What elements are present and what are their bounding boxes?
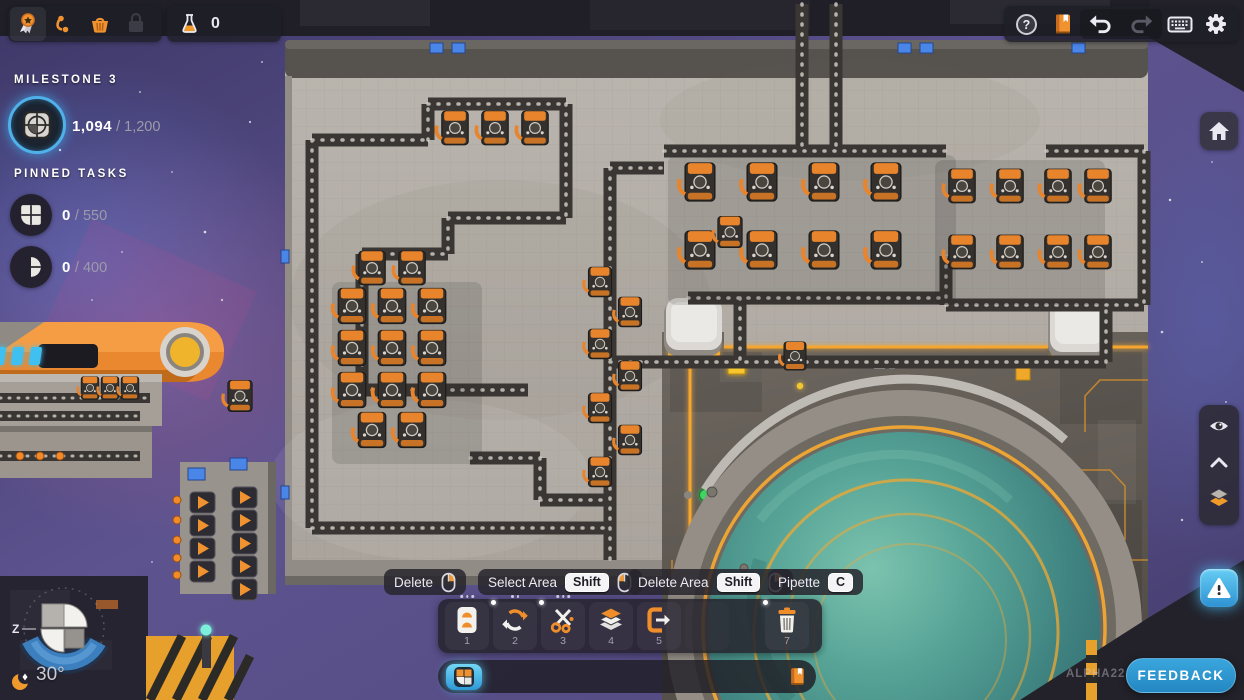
pinned-shape-button[interactable] xyxy=(446,664,482,690)
redo-button[interactable] xyxy=(1121,7,1162,41)
hotbar-slot-cutter[interactable]: 3 xyxy=(541,602,585,650)
hint-label: Pipette xyxy=(778,575,820,590)
redo-icon xyxy=(1129,12,1154,37)
game-world[interactable] xyxy=(0,0,1244,700)
hint-key: C xyxy=(828,573,853,592)
book-icon xyxy=(786,664,808,690)
eye-icon xyxy=(1206,414,1232,438)
flask-icon xyxy=(177,12,201,36)
slot-number: 7 xyxy=(784,636,790,647)
settings-button[interactable] xyxy=(1198,7,1234,41)
visibility-button[interactable] xyxy=(1201,409,1237,443)
rotate-icon xyxy=(501,604,529,636)
compass-icon[interactable] xyxy=(10,670,32,692)
milestone-header: MILESTONE 3 xyxy=(14,74,118,86)
hint-delete: Delete xyxy=(384,569,466,595)
notification-dot xyxy=(763,600,768,605)
journal-quick-button[interactable] xyxy=(786,664,808,690)
belt-port-icon xyxy=(645,604,673,636)
layers-icon xyxy=(1206,486,1232,510)
shape-icon-square-grid xyxy=(19,203,43,227)
hotbar-slot-belt[interactable]: 1 xyxy=(445,602,489,650)
hotbar-slot-trash[interactable]: 7 xyxy=(765,602,809,650)
feedback-button[interactable]: FEEDBACK xyxy=(1126,658,1236,693)
pinned-tasks-header: PINNED TASKS xyxy=(14,168,129,180)
pinned-task-2-icon[interactable] xyxy=(10,246,52,288)
layer-z-label: Z xyxy=(12,622,19,636)
help-button[interactable]: ? xyxy=(1008,7,1044,41)
hint-key: Shift xyxy=(565,573,609,592)
milestone-progress-ring[interactable] xyxy=(8,96,66,154)
chevron-up-icon xyxy=(1207,451,1231,473)
warning-icon xyxy=(1206,576,1232,600)
milestone-progress: 1,094 / 1,200 xyxy=(72,118,160,135)
shape-quadrant-icon xyxy=(454,667,474,687)
variant-dots xyxy=(460,595,474,598)
undo-icon xyxy=(1088,12,1113,37)
slot-number: 3 xyxy=(560,636,566,647)
game-screen: 0 MILESTONE 3 1,094 / 1,200 PINNED TASKS… xyxy=(0,0,1244,700)
slot-number: 2 xyxy=(512,636,518,647)
hotbar-slot-rotate[interactable]: 2 xyxy=(493,602,537,650)
hint-label: Delete xyxy=(394,575,433,590)
basket-icon xyxy=(87,11,113,37)
locked-feature-button[interactable] xyxy=(118,7,154,41)
hotbar-slot-empty[interactable] xyxy=(685,602,729,650)
compass-angle: 30° xyxy=(36,664,65,686)
hotbar-slot-stacker[interactable]: 4 xyxy=(589,602,633,650)
belt-icon xyxy=(454,604,480,636)
blueprints-button[interactable] xyxy=(46,7,82,41)
layer-up-button[interactable] xyxy=(1201,445,1237,479)
svg-text:?: ? xyxy=(1022,18,1030,32)
slot-number: 1 xyxy=(464,636,470,647)
mouse-right-icon xyxy=(441,572,456,593)
hint-key: Shift xyxy=(717,573,761,592)
status-bar xyxy=(438,660,816,693)
book-icon xyxy=(1050,12,1075,37)
pinned-task-2-progress: 0 / 400 xyxy=(62,259,107,276)
journal-button[interactable] xyxy=(1044,7,1080,41)
home-button[interactable] xyxy=(1200,112,1238,150)
milestones-button[interactable] xyxy=(10,7,46,41)
research-points[interactable]: 0 xyxy=(167,6,281,42)
hint-label: Delete Area xyxy=(638,575,709,590)
medal-icon xyxy=(15,11,41,37)
hint-select-area: Select Area Shift xyxy=(478,569,642,595)
layers-button[interactable] xyxy=(1201,481,1237,515)
pinned-task-1-progress: 0 / 550 xyxy=(62,207,107,224)
notification-dot xyxy=(539,600,544,605)
cutter-icon xyxy=(549,604,577,636)
alerts-button[interactable] xyxy=(1200,569,1238,607)
notification-dot xyxy=(491,600,496,605)
gear-icon xyxy=(1203,11,1229,37)
undo-button[interactable] xyxy=(1080,7,1121,41)
locked-icon xyxy=(123,11,149,37)
help-icon: ? xyxy=(1014,12,1039,37)
shape-icon-half-circle xyxy=(19,255,43,279)
hint-pipette: Pipette C xyxy=(768,569,863,595)
milestone-shape-icon xyxy=(21,109,53,141)
trash-icon xyxy=(774,604,800,636)
path-icon xyxy=(51,11,77,37)
topbar-right: ? xyxy=(1004,6,1238,42)
slot-number: 4 xyxy=(608,636,614,647)
current-shape-icon xyxy=(41,604,87,652)
stacker-icon xyxy=(596,604,626,636)
view-panel xyxy=(1199,405,1239,525)
home-icon xyxy=(1206,118,1232,144)
research-count: 0 xyxy=(211,15,220,33)
pinned-task-1-icon[interactable] xyxy=(10,194,52,236)
topbar-left xyxy=(8,6,162,42)
shortcuts-button[interactable] xyxy=(1162,7,1198,41)
keyboard-icon xyxy=(1166,11,1194,37)
building-hotbar: 1 2 3 xyxy=(438,599,822,653)
hint-label: Select Area xyxy=(488,575,557,590)
hotbar-slot-belt-port[interactable]: 5 xyxy=(637,602,681,650)
undo-redo-group xyxy=(1080,9,1162,39)
slot-number: 5 xyxy=(656,636,662,647)
variant-dots xyxy=(511,595,519,598)
crane-arm xyxy=(0,322,224,382)
shop-button[interactable] xyxy=(82,7,118,41)
variant-dots xyxy=(556,595,570,598)
